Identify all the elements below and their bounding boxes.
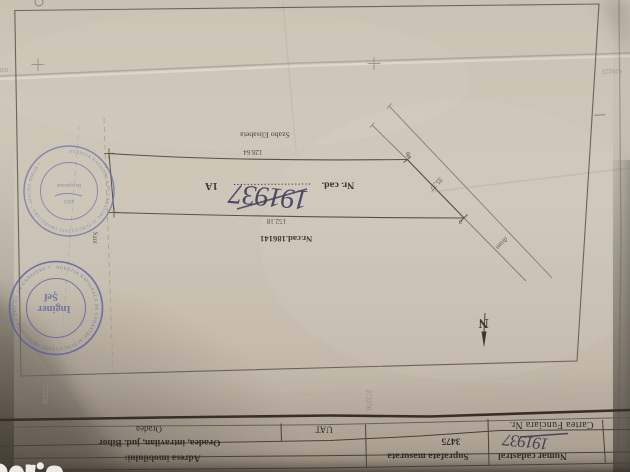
svg-text:620225: 620225: [602, 68, 622, 75]
svg-text:1A: 1A: [205, 180, 218, 191]
svg-text:2022: 2022: [64, 198, 75, 203]
svg-text:Inginer: Inginer: [37, 303, 71, 314]
svg-text:Şef: Şef: [44, 291, 59, 302]
svg-text:152.18: 152.18: [266, 217, 286, 225]
svg-text:Nr. cad.: Nr. cad.: [321, 179, 354, 190]
svg-text:272250: 272250: [41, 384, 49, 406]
svg-text:8: 8: [406, 150, 410, 159]
svg-text:N: N: [478, 315, 488, 330]
svg-text:Szabo Elisabeta: Szabo Elisabeta: [240, 131, 290, 140]
svg-text:128.64: 128.64: [243, 148, 263, 156]
svg-text:620225: 620225: [0, 66, 8, 73]
svg-text:Oradea: Oradea: [136, 424, 162, 434]
svg-text:Nr.cad.186141: Nr.cad.186141: [260, 234, 312, 244]
svg-text:Cartea Funciara Nr.: Cartea Funciara Nr.: [509, 419, 593, 430]
svg-text:3475: 3475: [441, 436, 460, 446]
svg-text:UAT: UAT: [315, 425, 333, 435]
svg-text:272250: 272250: [365, 390, 373, 412]
svg-text:Oradea, intravilan, jud. Bihor: Oradea, intravilan, jud. Bihor: [98, 437, 221, 447]
svg-text:Sant: Sant: [91, 231, 99, 244]
svg-text:Receptionat: Receptionat: [56, 182, 80, 187]
